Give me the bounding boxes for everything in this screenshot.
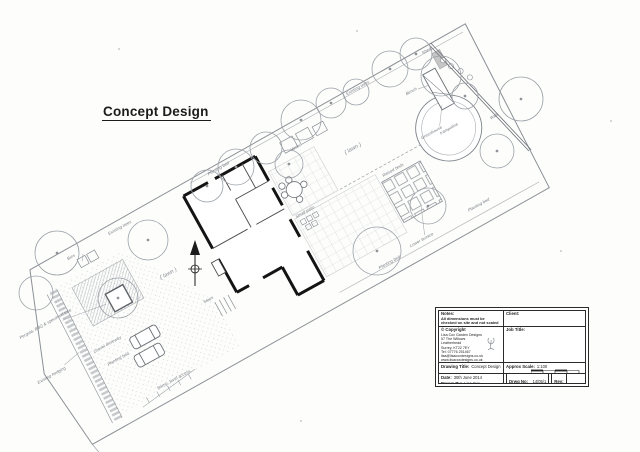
- tree-icon: [128, 220, 168, 260]
- job-title-cell: Job Title:: [504, 327, 585, 363]
- copyright-cell: © Copyright Lisa Cox Garden Designs 57 T…: [439, 327, 504, 363]
- annotation-lower-terrace: Lower terrace: [409, 231, 435, 248]
- annotation-bench: Bench: [405, 86, 419, 97]
- title-block-grid: Notes: All dimensions must be checked on…: [438, 310, 586, 384]
- annotation-bins: Bins: [66, 253, 76, 261]
- annotation-existing-hedging: Existing hedging: [36, 365, 67, 385]
- drwg-no-box: Drwg No: 14/05/1: [506, 374, 549, 383]
- notes-cell: Notes: All dimensions must be checked on…: [439, 311, 504, 327]
- scan-speck: [300, 420, 302, 422]
- job-title-label: Job Title:: [506, 328, 583, 333]
- annotation-lawn-main: ( lawn ): [344, 142, 363, 156]
- north-arrow-icon: [188, 240, 202, 286]
- plan-rotated-layer: ( lawn ) ( lawn ) trampoline Wall Greenh…: [0, 24, 577, 452]
- tree-icon: [400, 38, 432, 70]
- scan-speck: [118, 48, 120, 50]
- tree-icon: [372, 51, 408, 87]
- client-cell: Client:: [504, 311, 585, 327]
- scan-speck: [560, 250, 562, 252]
- date-value: 30th June 2014: [454, 375, 482, 380]
- drwg-no-value: 14/05/1: [533, 379, 547, 384]
- drawing-title-cell: Drawing Title: Concept Design: [439, 363, 504, 374]
- leader-line: [62, 352, 81, 365]
- drawn-by-value: Lisa Cox: [464, 381, 480, 383]
- annotation-herbs: Herbs: [289, 142, 301, 152]
- annotation-pergola: Pergola, BBQ & specimen tree: [18, 307, 72, 340]
- tree-icon: [499, 77, 543, 121]
- rev-box: Rev:: [551, 374, 566, 383]
- annotation-planting-bed-4: Planting bed: [467, 196, 491, 212]
- scale-cell: Approx Scale: 1:100: [504, 363, 585, 374]
- notes-text: All dimensions must be checked on site a…: [441, 317, 501, 327]
- drawing-title-label: Drawing Title:: [441, 365, 469, 370]
- company-web: www.lisacoxdesigns.co.uk: [441, 358, 501, 362]
- scan-speck: [356, 30, 358, 32]
- date-drawnby-cell: Date: 30th June 2014 Drawn By: Lisa Cox: [439, 374, 504, 383]
- scan-speck: [610, 120, 612, 122]
- title-block: Notes: All dimensions must be checked on…: [435, 307, 589, 387]
- drwg-no-label: Drwg No:: [509, 379, 528, 384]
- tree-icon: [316, 88, 346, 118]
- scanned-plan-page: Concept Design: [0, 0, 640, 452]
- tree-icon: [281, 100, 321, 140]
- gravel-driveway-area: [47, 223, 243, 419]
- drawing-title-value: Concept Design: [471, 364, 500, 369]
- drawn-by-label: Drawn By:: [441, 382, 462, 383]
- annotation-existing-trees-1: Existing trees: [107, 219, 132, 236]
- client-label: Client:: [506, 312, 583, 317]
- tree-icon: [480, 134, 514, 168]
- logo-sketch: [482, 335, 500, 353]
- bin-box: [87, 250, 99, 262]
- rev-label: Rev:: [554, 379, 563, 384]
- drwg-rev-cell: Drwg No: 14/05/1 Rev:: [504, 374, 585, 383]
